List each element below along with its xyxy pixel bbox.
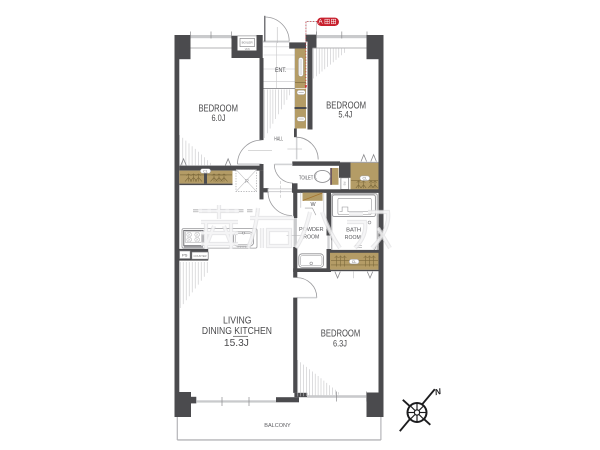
svg-text:6.0J: 6.0J: [212, 112, 226, 123]
svg-text:ROOM: ROOM: [345, 235, 361, 241]
svg-text:5.4J: 5.4J: [338, 109, 352, 120]
svg-text:R: R: [245, 179, 249, 185]
svg-text:HALL: HALL: [274, 137, 283, 143]
svg-text:COUNTER: COUNTER: [194, 254, 207, 258]
svg-text:BATH: BATH: [346, 228, 361, 234]
svg-text:ROOM: ROOM: [303, 235, 319, 241]
svg-text:CL: CL: [352, 260, 357, 264]
svg-text:6.3J: 6.3J: [333, 337, 347, 348]
svg-text:15.3J: 15.3J: [224, 338, 249, 349]
svg-text:BALCONY: BALCONY: [264, 423, 291, 429]
svg-text:DINING KITCHEN: DINING KITCHEN: [202, 326, 272, 337]
svg-text:CL: CL: [362, 177, 367, 181]
svg-text:BOILER: BOILER: [242, 40, 253, 44]
svg-text:PS: PS: [182, 253, 188, 258]
svg-text:LIVING: LIVING: [223, 315, 252, 326]
svg-text:CL: CL: [203, 169, 208, 173]
svg-text:TOILET: TOILET: [299, 176, 314, 182]
svg-text:VAN: VAN: [245, 47, 250, 51]
svg-text:ENT.: ENT.: [275, 67, 287, 74]
svg-text:PS: PS: [342, 182, 346, 186]
